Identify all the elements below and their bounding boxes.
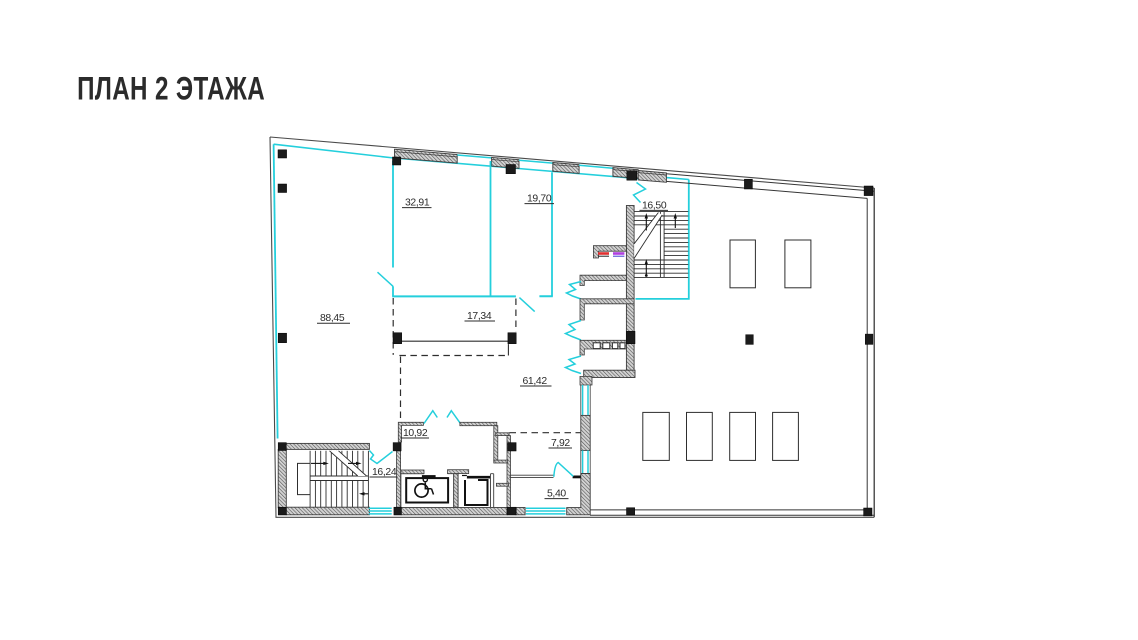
svg-text:19,70: 19,70: [527, 194, 552, 205]
svg-text:16,50: 16,50: [642, 200, 667, 211]
svg-text:88,45: 88,45: [320, 313, 345, 324]
svg-text:ПЛАН 2 ЭТАЖА: ПЛАН 2 ЭТАЖА: [77, 71, 265, 107]
svg-text:17,34: 17,34: [467, 311, 492, 322]
svg-text:32,91: 32,91: [405, 198, 430, 209]
svg-text:61,42: 61,42: [523, 376, 548, 387]
svg-text:7,92: 7,92: [551, 438, 570, 449]
svg-text:10,92: 10,92: [403, 428, 428, 439]
svg-text:16,24: 16,24: [372, 467, 397, 478]
svg-text:5,40: 5,40: [547, 489, 566, 500]
